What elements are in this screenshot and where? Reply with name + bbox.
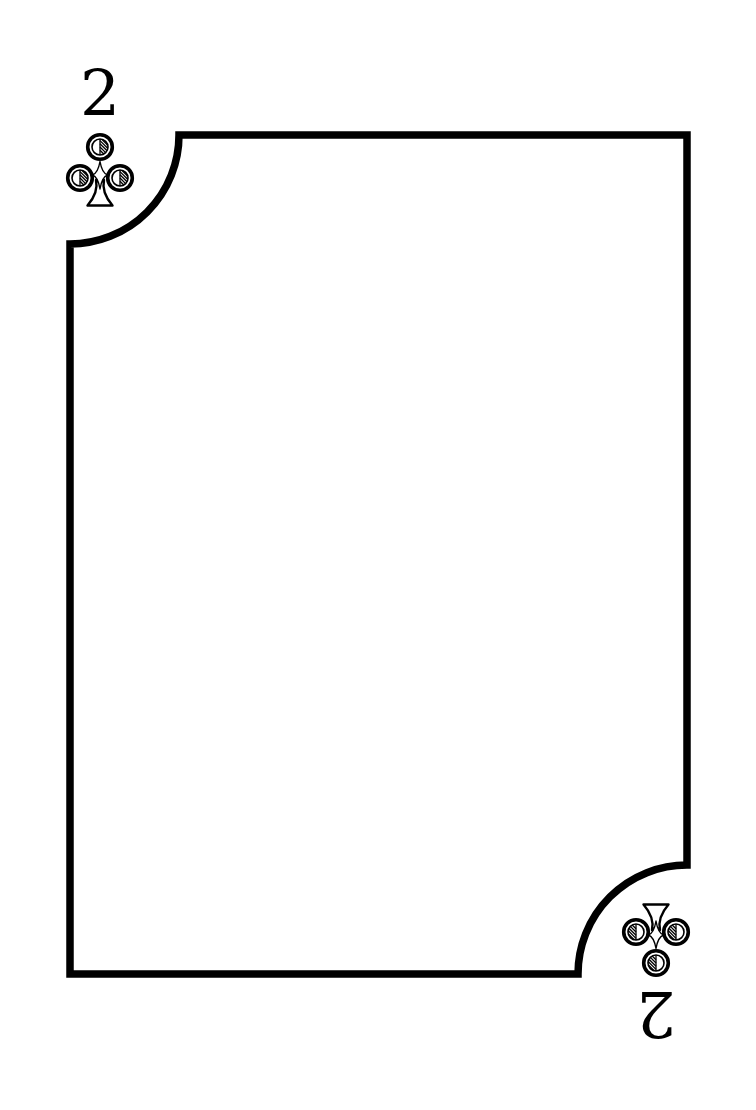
club-icon (68, 135, 133, 206)
card-border (70, 135, 687, 974)
rank-label-bottom-right: 2 (626, 980, 686, 1044)
playing-card[interactable]: 2 2 (0, 0, 756, 1110)
club-icon (624, 905, 689, 976)
card-artwork (0, 0, 756, 1110)
rank-label-top-left: 2 (70, 63, 130, 127)
